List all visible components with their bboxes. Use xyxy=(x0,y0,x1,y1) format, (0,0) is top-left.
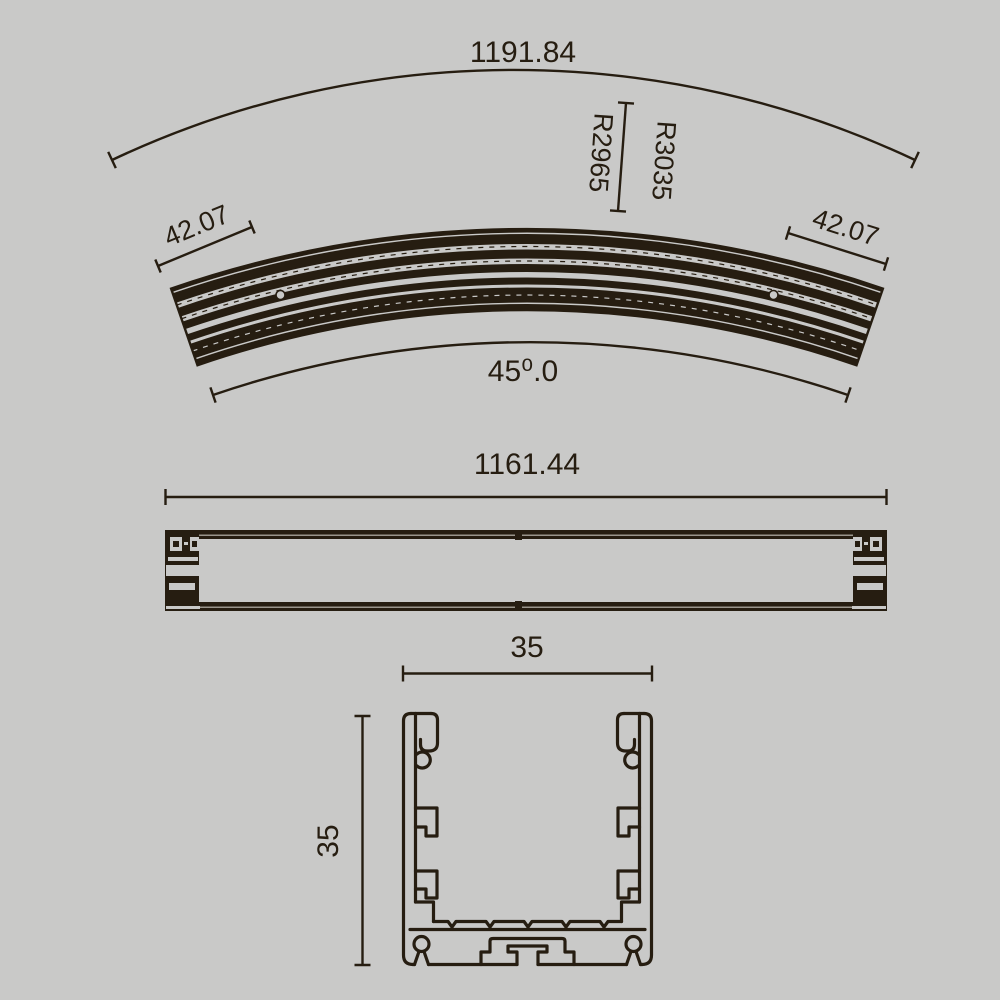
t-slot-block xyxy=(481,939,574,965)
arc-length-dimension: 1191.84 xyxy=(108,36,919,168)
side-center-mark-bottom xyxy=(515,601,522,611)
right-top-hook xyxy=(618,714,635,752)
end-cap-stripe xyxy=(166,565,200,576)
section-height-label: 35 xyxy=(312,824,345,857)
plan-view: 1191.84 R3035 R2965 42.07 42.07 xyxy=(108,36,919,403)
end-cap-stripe xyxy=(854,557,884,561)
t-slot-channel xyxy=(508,946,547,965)
angle-dimension-ticks xyxy=(210,387,850,402)
end-cap-stripe xyxy=(169,583,195,590)
end-width-left-label: 42.07 xyxy=(160,199,234,253)
right-wall-outer xyxy=(642,714,652,965)
radius-inner-label: R2965 xyxy=(583,112,618,193)
curved-profile-band xyxy=(171,229,883,365)
mounting-hole-right xyxy=(769,291,778,300)
floor-top-notched xyxy=(434,922,622,928)
length-label: 1161.44 xyxy=(474,448,580,481)
radius-outer-label: R3035 xyxy=(646,120,681,201)
side-bottom-seam xyxy=(199,607,853,609)
angle-label: 45⁰.0 xyxy=(488,355,558,388)
end-cap-stripe xyxy=(168,557,198,561)
side-end-cap-right xyxy=(852,530,887,611)
end-cap-dash-glyph xyxy=(864,542,868,545)
section-outline xyxy=(404,714,652,965)
radius-dimension: R3035 R2965 xyxy=(583,102,681,211)
side-top-seam xyxy=(199,535,853,537)
end-width-dimension-left: 42.07 xyxy=(155,199,254,273)
keyhole-slot-left xyxy=(415,952,429,965)
end-cap-hook-notch xyxy=(192,541,197,547)
technical-drawing-canvas: 1191.84 R3035 R2965 42.07 42.07 xyxy=(0,0,1000,1000)
section-width-dimension: 35 xyxy=(403,631,652,682)
end-cap-stripe xyxy=(852,606,886,609)
right-bracket-hook-lower xyxy=(618,871,640,898)
side-center-mark-top xyxy=(515,530,522,540)
side-end-cap-left xyxy=(165,530,200,611)
end-width-right-label: 42.07 xyxy=(809,203,882,252)
length-dimension: 1161.44 xyxy=(166,448,887,505)
drawing-svg: 1191.84 R3035 R2965 42.07 42.07 xyxy=(0,0,1000,1000)
section-height-dimension: 35 xyxy=(312,716,371,965)
arc-length-label: 1191.84 xyxy=(470,36,576,69)
arc-length-dimension-ticks xyxy=(108,152,919,168)
mounting-hole-left xyxy=(276,291,285,300)
left-floor-ledge xyxy=(416,902,434,922)
right-c-clip xyxy=(625,752,638,768)
end-cap-stripe xyxy=(166,606,200,609)
left-bracket-hook-lower xyxy=(416,871,438,898)
right-floor-ledge xyxy=(622,902,640,922)
side-view: 1161.44 xyxy=(165,448,887,611)
end-cap-hook-notch xyxy=(873,541,879,547)
right-bracket-hook-upper xyxy=(618,808,640,836)
profile-side-body xyxy=(165,530,887,611)
keyhole-slot-right xyxy=(627,952,641,965)
arc-length-dimension-line xyxy=(112,70,915,160)
screw-keyhole-left xyxy=(414,937,429,952)
left-bracket-hook-upper xyxy=(416,808,438,836)
cross-section-view: 35 35 xyxy=(312,631,652,965)
section-width-label: 35 xyxy=(510,631,543,664)
end-cap-stripe xyxy=(857,583,883,590)
left-c-clip xyxy=(417,752,430,768)
left-wall-outer xyxy=(404,714,414,965)
angle-dimension: 45⁰.0 xyxy=(210,342,850,402)
end-cap-dash-glyph xyxy=(184,542,188,545)
end-cap-hook-notch xyxy=(855,541,860,547)
end-cap-hook-notch xyxy=(173,541,179,547)
screw-keyhole-right xyxy=(626,937,641,952)
end-width-dimension-right: 42.07 xyxy=(786,203,888,271)
left-top-hook xyxy=(421,714,438,752)
end-cap-stripe xyxy=(852,565,886,576)
